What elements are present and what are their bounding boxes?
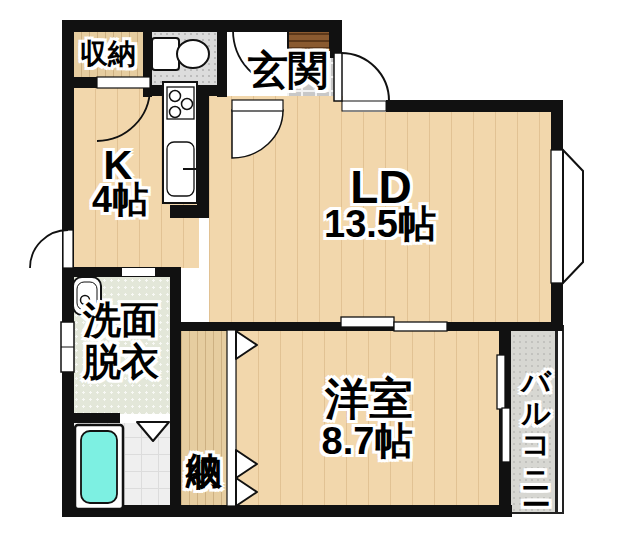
label-balcony: バルコニー bbox=[522, 349, 551, 491]
washroom-door-gap bbox=[122, 268, 155, 276]
bay-window bbox=[551, 150, 583, 283]
kitchen-counter bbox=[163, 82, 197, 203]
bathroom-folding-door bbox=[120, 414, 170, 441]
label-ld-size: 13.5帖 bbox=[324, 205, 436, 243]
label-western-room: 洋室 bbox=[325, 377, 413, 421]
balcony-sliding-door bbox=[497, 355, 510, 462]
bathtub-icon bbox=[75, 425, 123, 509]
label-western-room-size: 8.7帖 bbox=[322, 422, 413, 460]
toilet-icon bbox=[152, 38, 209, 70]
sliding-door bbox=[341, 317, 447, 331]
kitchen-back-door bbox=[30, 230, 73, 268]
label-washroom-line1: 洗面 bbox=[83, 301, 159, 339]
washroom-window bbox=[61, 322, 74, 372]
closet-folding-door bbox=[227, 330, 257, 506]
floor-plan: 収納 玄関 K 4帖 LD 13.5帖 洗面 脱衣 収納 洋室 8.7帖 バルコ… bbox=[0, 0, 640, 541]
entrance-door bbox=[334, 53, 389, 111]
label-kitchen-size: 4帖 bbox=[92, 182, 148, 218]
label-washroom-line2: 脱衣 bbox=[83, 343, 159, 381]
label-genkan: 玄関 bbox=[248, 50, 328, 90]
stove-burners bbox=[167, 87, 194, 119]
storage-door bbox=[97, 77, 150, 141]
kitchen-sink bbox=[167, 142, 197, 196]
label-storage-top: 収納 bbox=[80, 40, 136, 68]
hall-ld-door bbox=[232, 100, 283, 158]
